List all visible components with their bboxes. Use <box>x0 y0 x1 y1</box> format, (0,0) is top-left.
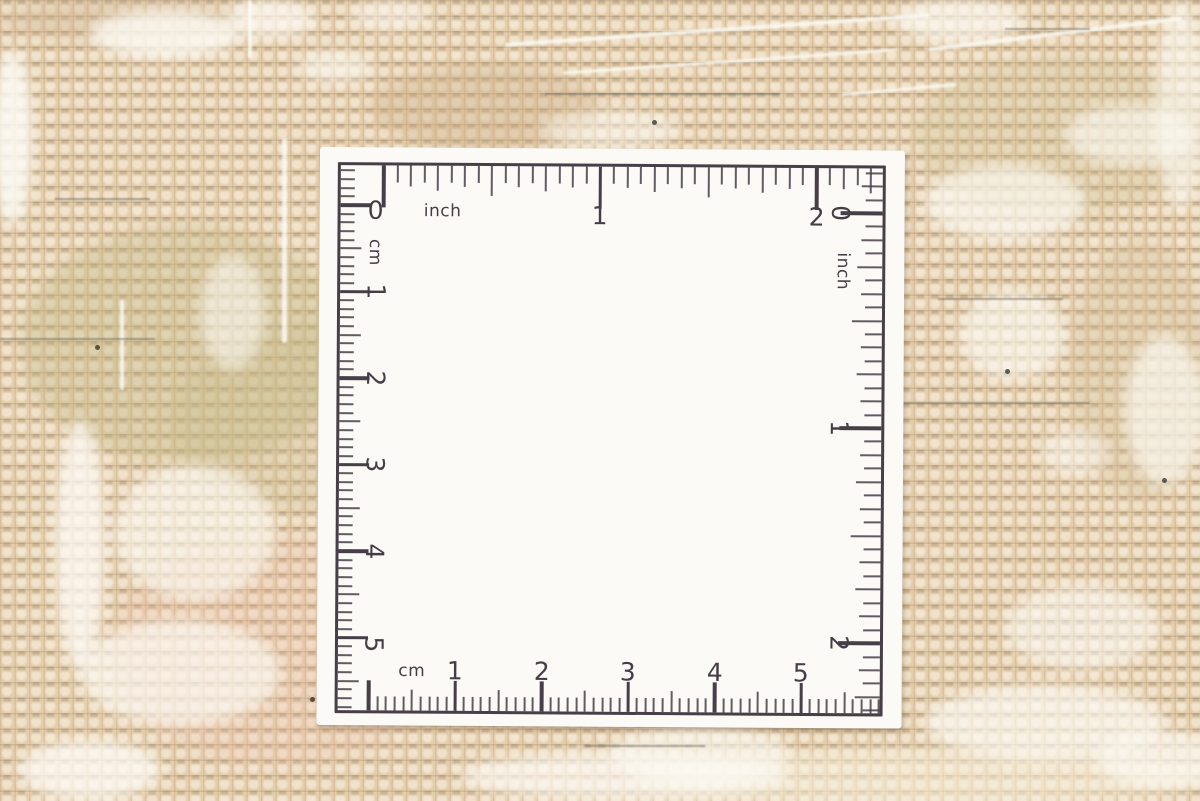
carpet-photo: 0 inch 1 2 0 inch 1 2 cm 1 2 3 4 5 cm 1 … <box>0 0 1200 801</box>
ruler-card: 0 inch 1 2 0 inch 1 2 cm 1 2 3 4 5 cm 1 … <box>316 147 905 729</box>
right-inch-scale-ticks <box>316 147 905 729</box>
